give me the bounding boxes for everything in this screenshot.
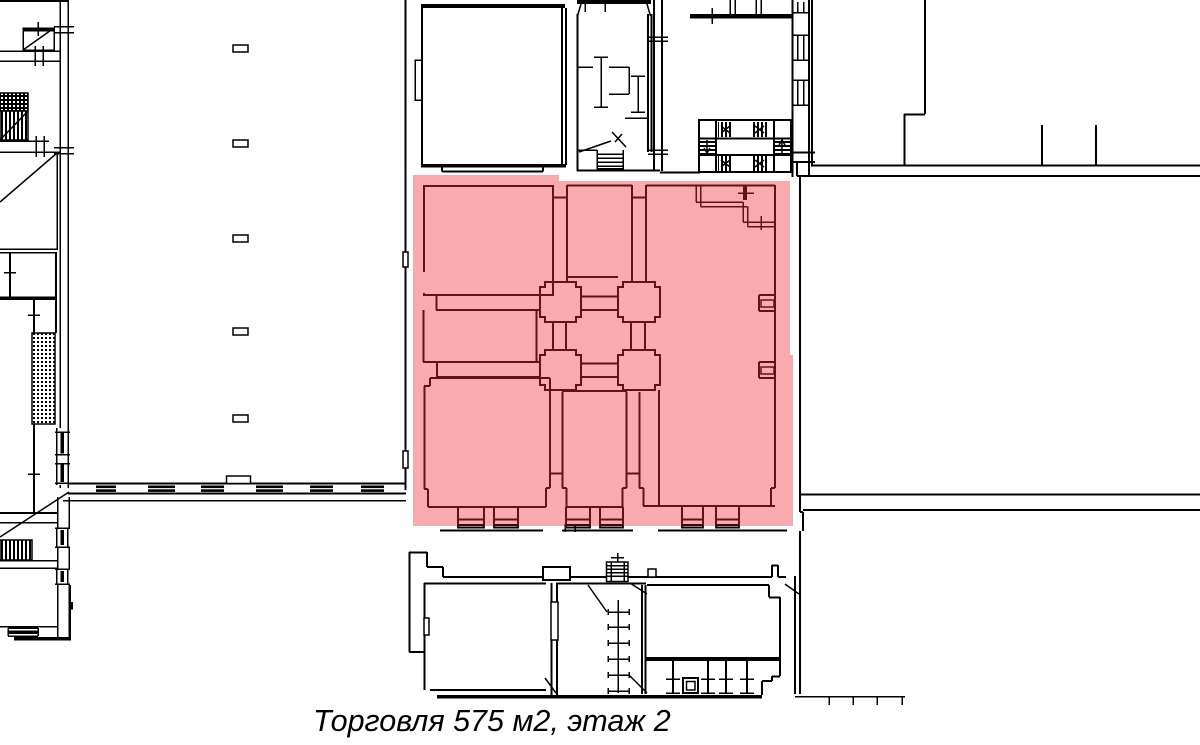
svg-text:Торговля 575 м2, этаж 2: Торговля 575 м2, этаж 2 — [313, 704, 671, 738]
